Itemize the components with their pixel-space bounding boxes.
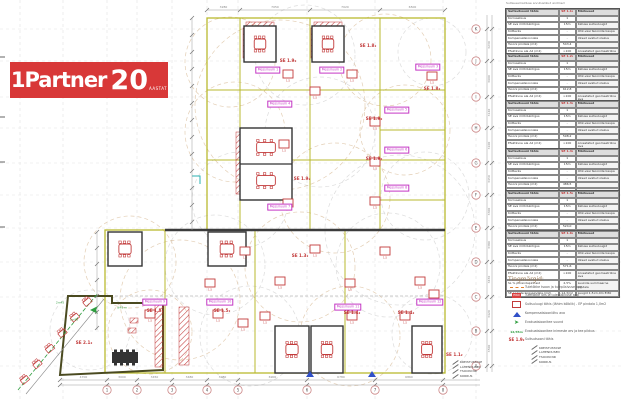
svg-text:3: 3 [171, 388, 174, 393]
compensation-air-icon [508, 312, 525, 317]
svg-text:D: D [474, 260, 477, 265]
smoke-zone-label: SE 1.1₂ [446, 352, 463, 357]
room-label: Messiruum 4 [267, 101, 292, 108]
callout-line [452, 374, 458, 379]
smoke-zone-label: SE 1.5₂ [214, 309, 231, 313]
svg-text:2: 2 [136, 388, 139, 393]
svg-text:1,5: 1,5 [348, 288, 352, 292]
svg-text:1,5: 1,5 [313, 254, 317, 258]
legend-callout: KREISTUSTASELAHENDUSEDTSOONI NRKORRUS [525, 346, 620, 364]
smoke-zone-callout: SE 1.1₂ KREISTUSTASELAHENDUSEDTSOONI NRK… [446, 341, 506, 378]
svg-text:1,5: 1,5 [282, 149, 286, 153]
smoke-zone-icon: SE 1.9₂ [508, 337, 525, 342]
conference-table [112, 350, 138, 366]
zone-tables: Suitsueemalduse arvutuslikud andmed Suit… [505, 0, 620, 5]
svg-text:1,5: 1,5 [430, 81, 434, 85]
svg-text:4: 4 [206, 388, 209, 393]
logo-suffix: AASTAT [149, 86, 167, 91]
dimension-value: 4700 [80, 375, 88, 379]
meeting-room [412, 326, 442, 373]
svg-text:1,5: 1,5 [403, 321, 407, 325]
logo-name: 1Partner [11, 68, 107, 92]
meeting-room [312, 26, 344, 62]
smoke-zone-label: SE 1.9₂ [280, 59, 297, 63]
smoke-hatch-symbol: 1,5 [260, 312, 270, 325]
callout-label: KORRUS [539, 360, 551, 364]
svg-text:C: C [475, 295, 478, 300]
svg-text:1,5: 1,5 [208, 288, 212, 292]
svg-text:1,5: 1,5 [278, 286, 282, 290]
legend-item-label: Evakuatsioonitee suund [525, 321, 563, 325]
legend-item: ➤Evakuatsioonitee suund [508, 320, 620, 326]
dimension-value: 3280 [220, 5, 228, 9]
room-label: Messiruum 5 [384, 107, 409, 114]
legend-item: Suitsuluugi tähis (lähim kõlblik) - EP p… [508, 301, 620, 308]
dimension-value: 3420 [487, 310, 491, 318]
smoke-hatch-symbol: 1,5 [347, 70, 357, 83]
callout-label: KREISTUSTASE [460, 360, 482, 364]
dimension-value: 7050 [271, 5, 279, 9]
dimension-value: 3300 [487, 208, 491, 216]
dimension-value: 3450 [487, 175, 491, 183]
callout-label: TSOONI NR [539, 355, 556, 359]
logo: 1Partner 20 AASTAT [10, 62, 168, 98]
dimension-value: 3080 [219, 375, 227, 379]
drawing-canvas: 1,51,51,51,51,51,51,51,51,51,51,51,51,51… [0, 0, 622, 400]
smoke-hatch-symbol: 1,5 [238, 319, 248, 332]
meeting-room [311, 326, 343, 373]
svg-text:J: J [474, 59, 476, 64]
svg-text:H: H [474, 126, 477, 131]
callout-label: LAHENDUSED [539, 350, 560, 354]
hatched-strip [130, 318, 138, 323]
svg-text:1,5: 1,5 [373, 206, 377, 210]
smoke-hatch-icon [508, 301, 525, 308]
meeting-room [240, 128, 292, 200]
smoke-hatch-symbol: 1,5 [205, 279, 215, 292]
smoke-zone-label: SE 1.9₂ [366, 117, 383, 121]
smoke-hatch-symbol: 1,5 [345, 279, 355, 292]
legend-item-label: Tuletõkke tsoon ja tulepüsivuse aeg [525, 286, 582, 290]
legend-item: Kompensatsiooniõhu ava [508, 312, 620, 317]
callout-label: KREISTUSTASE [539, 346, 561, 350]
legend-item-label: Tuletõkke uks ja tulepüsivuse aeg [525, 294, 579, 298]
evacuation-note: 1×90 [70, 319, 78, 322]
smoke-hatch-symbol: 1,5 [310, 87, 320, 100]
evacuation-note: ≤45 m [117, 307, 127, 310]
legend: Tingmärgid: Tuletõkke tsoon ja tulepüsiv… [508, 276, 620, 364]
dimension-value: 3480 [186, 375, 194, 379]
svg-text:I: I [475, 95, 476, 100]
room-label: Messiruum 1 [255, 67, 280, 74]
svg-text:1: 1 [106, 388, 109, 393]
desk-symbol [31, 358, 42, 369]
dimension-value: 3140 [487, 109, 491, 117]
smoke-zone-label: SE 1.9₂ [366, 157, 383, 161]
room-label: Messiruum 8 [384, 185, 409, 192]
room-label: Messiruum 3 [415, 64, 440, 71]
svg-text:1,5: 1,5 [241, 328, 245, 332]
svg-text:7: 7 [374, 388, 377, 393]
legend-item: 12/45mEvakuatsioonitee inimeste arv ja t… [508, 330, 620, 334]
svg-text:5: 5 [237, 388, 240, 393]
smoke-zone-label: SE 1.8₂ [424, 87, 441, 91]
room-label: Messiruum 6 [384, 147, 409, 154]
smoke-hatch-symbol: 1,5 [415, 277, 425, 290]
coverage-arc [381, 152, 469, 240]
svg-text:1,5: 1,5 [383, 256, 387, 260]
svg-text:K: K [475, 27, 478, 32]
dimension-value: 6860 [405, 375, 413, 379]
legend-title: Tingmärgid: [508, 276, 620, 283]
hatched-strip [128, 328, 136, 333]
meeting-room [244, 26, 276, 62]
callout-label: TSOONI NR [460, 369, 477, 373]
svg-text:6: 6 [306, 388, 309, 393]
hatched-strip [179, 307, 189, 365]
dimension-value: 3600 [487, 75, 491, 83]
svg-text:1,5: 1,5 [373, 127, 377, 131]
room-label: Messiruum 10 [206, 299, 233, 306]
callout-line [531, 359, 537, 364]
dimension-value: 3380 [487, 241, 491, 249]
dimension-value: 3450 [151, 375, 159, 379]
smoke-hatch-symbol: 1,5 [380, 247, 390, 260]
svg-text:G: G [474, 161, 477, 166]
callout-label: LAHENDUSED [460, 365, 481, 369]
fire-zone-line-icon [508, 287, 525, 288]
svg-text:1,5: 1,5 [350, 321, 354, 325]
smoke-zone-label: SE 1.3₂ [292, 254, 309, 258]
callout-row: KORRUS [531, 359, 620, 364]
dimension-value: 6500 [409, 5, 417, 9]
legend-item-label: Suitsutsooni tähis [525, 338, 553, 342]
room-label: Messiruum 12 [416, 299, 443, 306]
smoke-hatch-symbol: 1,5 [310, 245, 320, 258]
legend-item-label: Evakuatsioonitee inimeste arv ja tee pik… [525, 330, 595, 334]
room-label: Messiruum 7 [267, 204, 292, 211]
evacuation-note: 2×45 [56, 302, 64, 305]
room-label: Messiruum 9 [142, 299, 167, 306]
smoke-hatch-symbol: 1,5 [275, 277, 285, 290]
smoke-hatch-symbol: 1,5 [283, 70, 293, 83]
legend-item-label: Suitsuluugi tähis (lähim kõlblik) - EP p… [525, 303, 606, 307]
smoke-zone-label: SE 1.4₂ [344, 311, 361, 315]
meeting-room [108, 232, 142, 266]
callout-label: KORRUS [460, 374, 472, 378]
evacuation-count-icon: 12/45m [508, 330, 525, 334]
dimension-value: 3450 [487, 276, 491, 284]
dimension-value: 6780 [337, 375, 345, 379]
dimension-value: 6900 [269, 375, 277, 379]
svg-text:1,5: 1,5 [313, 96, 317, 100]
dimension-value: 3000 [118, 375, 126, 379]
dimension-value: 3230 [487, 41, 491, 49]
legend-item: SE 1.9₂Suitsutsooni tähis [508, 337, 620, 342]
svg-text:1,5: 1,5 [148, 319, 152, 323]
meeting-room [275, 326, 309, 373]
smoke-hatch-symbol: 1,5 [370, 197, 380, 210]
svg-text:1,5: 1,5 [243, 256, 247, 260]
dimension-value: 7020 [341, 5, 349, 9]
evacuation-direction-icon: ➤ [508, 320, 525, 326]
svg-text:1,5: 1,5 [263, 321, 267, 325]
smoke-zone-label: SE 1.8₂ [360, 44, 377, 48]
legend-item: Tuletõkke tsoon ja tulepüsivuse aeg [508, 286, 620, 290]
svg-text:1,5: 1,5 [286, 79, 290, 83]
callout-row: KORRUS [452, 374, 506, 379]
svg-text:B: B [475, 329, 478, 334]
fire-door-icon: EI60 [508, 293, 525, 297]
smoke-zone-label: SE 1.5₂ [147, 309, 164, 313]
room-label: Messiruum 2 [319, 67, 344, 74]
svg-text:1,5: 1,5 [373, 167, 377, 171]
legend-item-label: Kompensatsiooniõhu ava [525, 312, 565, 316]
svg-text:8: 8 [442, 388, 445, 393]
logo-number: 20 [110, 67, 148, 94]
svg-text:1,5: 1,5 [418, 286, 422, 290]
coverage-arc [339, 14, 431, 106]
smoke-zone-label: SE 1.9₂ [294, 177, 311, 181]
tables-caption: Suitsueemalduse arvutuslikud andmed [506, 1, 620, 5]
svg-text:1,5: 1,5 [350, 79, 354, 83]
svg-text:1,5: 1,5 [216, 319, 220, 323]
legend-item: EI60Tuletõkke uks ja tulepüsivuse aeg [508, 293, 620, 297]
dimension-value: 3100 [487, 142, 491, 150]
smoke-hatch-symbol: 1,5 [427, 72, 437, 85]
smoke-zone-label: SE 2.1₂ [76, 341, 93, 345]
smoke-zone-label: SE 1.4₂ [398, 311, 415, 315]
